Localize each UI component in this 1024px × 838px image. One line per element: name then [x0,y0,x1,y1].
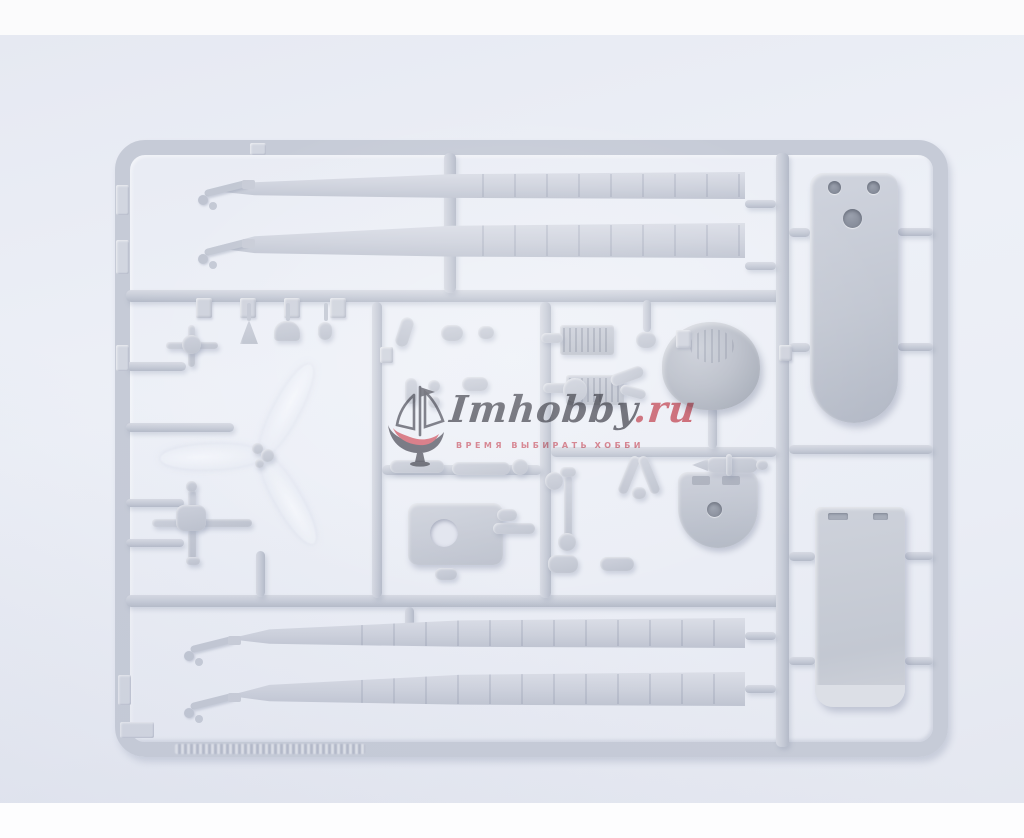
rectangular-panel [815,507,905,707]
ship-stand [415,453,425,462]
runner-segment [776,153,789,747]
small-clamp-part [478,326,494,339]
panel-gate-stub [905,552,933,560]
watermark-tagline: ВРЕМЯ ВЫБИРАТЬ ХОББИ [456,441,644,450]
runner-segment [789,445,933,454]
runner-segment [444,153,456,293]
fin-gate-stub [789,343,810,352]
frame-mark [120,722,154,738]
panel-gate-stub [789,552,815,561]
runner-stub [256,551,265,597]
blade-root-fitting [184,635,244,669]
panel-gate-stub [789,657,815,665]
panel-slot [828,513,848,520]
small-shaft-part [564,475,572,537]
blade-gate-stub [745,632,776,640]
small-disc-part [558,533,576,551]
panel-lower-strip [815,685,905,707]
part-number-tag [380,347,393,363]
blade-gate-stub [745,685,776,693]
watermark: Imhobby.ru ВРЕМЯ ВЫБИРАТЬ ХОББИ [384,383,652,461]
small-dome-part [274,321,300,341]
gate-stem [286,303,290,321]
v-clamp-joint [632,487,646,499]
letterbox-bottom [0,803,1024,838]
fin-hole [843,209,862,228]
radiator-fins [563,328,611,352]
blade-segment-lines [452,174,744,197]
runner-segment [126,290,784,302]
frame-mark [116,185,129,215]
small-part [636,332,656,348]
blade-segment-lines [331,674,744,704]
blade-root-fitting [198,238,258,272]
dome-ribs [690,329,734,363]
blade-segment-lines [331,620,744,646]
plate-notch [692,476,710,485]
fin-hole [828,181,841,194]
small-knob-part [512,459,528,475]
frame-mark [116,240,129,274]
ship-base [410,461,430,466]
blade-root-fitting [184,692,244,726]
gearbox-bore [430,519,458,547]
rotor-hub-knob [186,481,197,492]
fin-gate-stub [789,228,810,237]
swashplate-center [182,335,201,354]
brand-tld: .ru [632,387,699,431]
frame-mark [116,345,129,371]
gate-stem [247,303,251,321]
tagline-right: ХОББИ [595,441,644,450]
runner-stub [126,423,234,432]
plate-hole [707,502,722,517]
tagline-left: ВРЕМЯ ВЫБИРАТЬ [456,441,590,450]
rotor-hub-foot [186,557,200,565]
fin-hole [867,181,880,194]
small-arm-part [600,557,634,571]
letterbox-top [0,0,1024,35]
part-number-tag [196,298,212,318]
exhaust-end [756,460,768,470]
brand-name: Imhobby [448,387,637,431]
small-part [318,322,332,340]
embossed-part-code [175,744,365,754]
blade-root-fitting [198,179,258,213]
small-clamp-part [441,325,463,341]
small-box-part [548,555,578,573]
striped-radiator-block [560,325,614,355]
blade-segment-lines [452,225,744,256]
exhaust-ring [726,454,732,476]
gearbox-housing [408,503,503,565]
frame-mark [118,675,131,705]
gearbox-connector [493,523,535,534]
part-number-tag [330,298,346,318]
rotor-hub-center [176,505,206,531]
sailing-ship-icon [384,383,456,467]
panel-gate-stub [905,657,933,665]
sprue-product-photo: Imhobby.ru ВРЕМЯ ВЫБИРАТЬ ХОББИ [0,0,1024,838]
runner-stub [126,539,184,547]
runner-stub [126,499,184,507]
fin-gate-stub [898,343,933,351]
small-part [497,509,517,521]
tail-rotor-hub [255,459,264,468]
runner-stub [643,300,651,332]
vertical-fin-panel [810,173,898,423]
small-box-part [435,568,457,580]
small-cap-part [560,467,576,477]
panel-slot [873,513,888,520]
radiator-connector [541,333,563,343]
small-cylinder-part [452,462,510,475]
part-number-tag [779,345,792,361]
frame-mark [250,143,266,155]
blade-gate-stub [745,262,776,270]
fin-gate-stub [898,228,933,236]
exhaust-cylinder-part [706,457,758,473]
watermark-brand: Imhobby.ru [448,391,698,428]
blade-gate-stub [745,200,776,208]
runner-stub [126,362,186,371]
photo-area: Imhobby.ru ВРЕМЯ ВЫБИРАТЬ ХОББИ [0,35,1024,803]
part-number-tag [676,330,691,348]
plate-notch [722,476,740,485]
gate-stem [324,303,328,321]
runner-stub [708,407,717,449]
runner-segment [126,595,784,607]
